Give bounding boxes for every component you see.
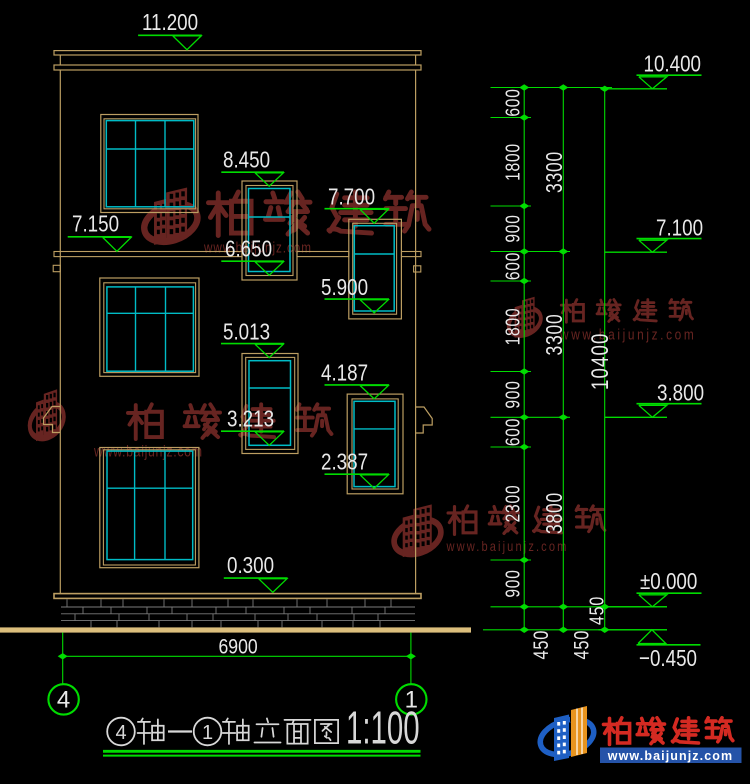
svg-text:11.200: 11.200 [142,9,198,36]
svg-text:5.900: 5.900 [321,274,368,301]
svg-text:6900: 6900 [219,635,258,659]
svg-text:2300: 2300 [502,485,524,523]
svg-text:5.013: 5.013 [223,318,270,345]
svg-text:www.baijunjz.com: www.baijunjz.com [446,539,569,554]
svg-text:7.700: 7.700 [328,183,375,210]
svg-text:2.387: 2.387 [321,449,368,476]
svg-text:1800: 1800 [502,308,524,346]
svg-text:10400: 10400 [587,333,614,391]
svg-text:0.300: 0.300 [227,552,274,579]
svg-text:7.150: 7.150 [72,210,119,237]
svg-text:900: 900 [502,569,524,597]
svg-text:600: 600 [502,252,524,280]
svg-text:1800: 1800 [502,143,524,181]
svg-text:10.400: 10.400 [644,50,701,77]
svg-text:600: 600 [502,88,524,116]
svg-text:1: 1 [202,722,213,744]
svg-text:www.baijunjz.com: www.baijunjz.com [607,749,733,763]
svg-text:3.213: 3.213 [227,405,274,432]
svg-text:600: 600 [502,418,524,446]
svg-text:450: 450 [529,630,552,660]
svg-text:7.100: 7.100 [656,215,703,242]
svg-text:900: 900 [502,380,524,408]
svg-text:4: 4 [115,722,126,744]
svg-text:450: 450 [585,596,608,625]
svg-text:−0.450: −0.450 [639,645,697,672]
svg-text:3300: 3300 [543,314,568,356]
svg-text:8.450: 8.450 [223,146,270,173]
svg-text:6.650: 6.650 [225,236,272,263]
svg-text:1:100: 1:100 [346,703,420,754]
svg-text:3.800: 3.800 [657,380,704,407]
svg-text:3300: 3300 [543,151,568,193]
svg-text:4: 4 [57,687,70,714]
svg-text:900: 900 [502,214,524,242]
svg-text:±0.000: ±0.000 [640,568,697,595]
svg-text:www.baijunjz.com: www.baijunjz.com [559,326,696,342]
svg-text:4.187: 4.187 [321,359,368,386]
svg-text:450: 450 [570,630,593,660]
svg-text:3800: 3800 [543,492,568,534]
